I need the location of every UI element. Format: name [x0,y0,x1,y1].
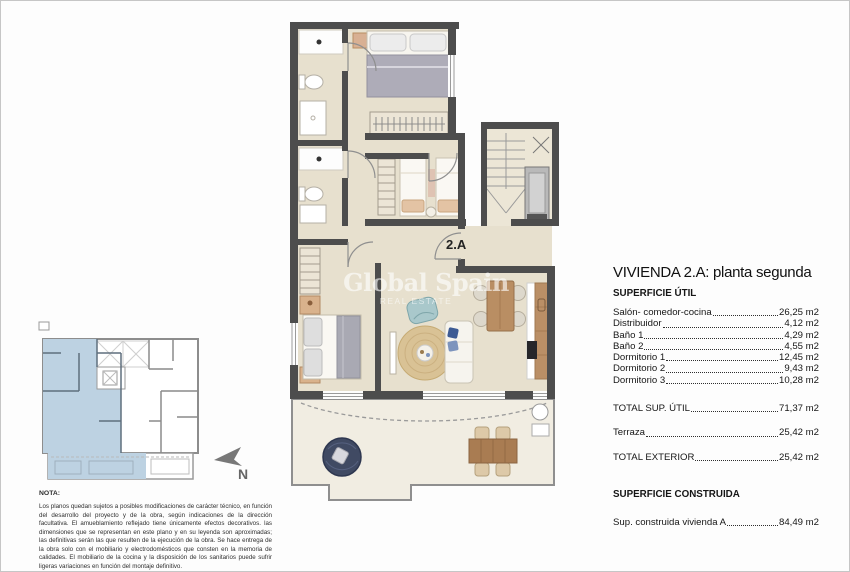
chair [496,427,510,440]
dotted-leader [695,460,778,461]
surface-util-heading: SUPERFICIE ÚTIL [613,288,819,299]
row-label: Dormitorio 2 [613,363,665,374]
key-plan [39,322,198,479]
row-value: 4,12 m2 [784,318,819,329]
faucet [317,157,322,162]
shafts [97,341,149,367]
toilet-tank [299,75,305,89]
unit-label: 2.A [446,237,467,252]
dotted-leader [646,436,778,437]
chair [496,463,510,476]
north-label: N [238,466,248,482]
surface-row: Baño 1 4,29 m2 [613,330,819,341]
row-value: 10,28 m2 [779,375,819,386]
dotted-leader [644,349,783,350]
row-label: Dormitorio 1 [613,352,665,363]
note-body: Los planos quedan sujetos a posibles mod… [39,503,272,571]
dotted-leader [713,315,778,316]
dotted-leader [644,338,783,339]
construida-row: Sup. construida vivienda A 84,49 m2 [613,517,819,528]
total-exterior-row: TOTAL EXTERIOR 25,42 m2 [613,452,819,463]
row-value: 26,25 m2 [779,307,819,318]
row-label: Baño 1 [613,330,643,341]
row-value: 84,49 m2 [779,517,819,528]
terraza-row: Terraza 25,42 m2 [613,427,819,438]
pillow [304,349,322,376]
oven [527,341,537,359]
surface-row: Dormitorio 2 9,43 m2 [613,363,819,374]
row-label: Terraza [613,427,645,438]
kitchen-counter [527,283,548,379]
lamp [308,301,313,306]
watermark-subtitle: REAL ESTATE [380,296,453,306]
page-title: VIVIENDA 2.A: planta segunda [613,264,819,281]
north-arrow-icon [214,447,242,466]
pillow [438,200,460,212]
toilet-tank [299,187,305,201]
north-arrow: N [214,447,248,482]
wardrobe [370,112,448,135]
row-value: 12,45 m2 [779,352,819,363]
surface-row: Dormitorio 1 12,45 m2 [613,352,819,363]
shower [300,205,326,223]
row-label: TOTAL SUP. ÚTIL [613,403,690,414]
dotted-leader [663,327,784,328]
toilet [305,75,323,89]
surface-row: Distribuidor 4,12 m2 [613,318,819,329]
pillow [410,34,446,51]
double-bed [367,31,449,97]
surface-construida-heading: SUPERFICIE CONSTRUIDA [613,489,819,500]
pillow [402,200,424,212]
floorplan-page: 2.A Global Spain REAL ESTATE [0,0,850,572]
row-label: Salón- comedor-cocina [613,307,712,318]
pillow [447,327,459,339]
terrace-daybed [323,438,361,476]
chair [475,427,489,440]
watermark-title: Global Spain [343,268,509,297]
closet [378,159,395,215]
tray [417,345,433,361]
shower [300,101,326,135]
console-table [390,332,396,374]
dotted-leader [691,411,778,412]
rug [398,326,452,380]
surface-rows: Salón- comedor-cocina 26,25 m2 Distribui… [613,307,819,386]
toilet [305,187,323,201]
dotted-leader [666,383,778,384]
pillow [304,318,322,346]
row-label: Sup. construida vivienda A [613,517,726,528]
elevator [525,167,549,221]
row-value: 25,42 m2 [779,427,819,438]
row-value: 71,37 m2 [779,403,819,414]
note: NOTA: Los planos quedan sujetos a posibl… [39,490,272,571]
row-value: 25,42 m2 [779,452,819,463]
total-util-row: TOTAL SUP. ÚTIL 71,37 m2 [613,403,819,414]
surface-row: Baño 2 4,55 m2 [613,341,819,352]
details-panel: VIVIENDA 2.A: planta segunda SUPERFICIE … [613,264,819,528]
closet [300,248,320,294]
row-label: TOTAL EXTERIOR [613,452,694,463]
pillow [370,34,406,51]
twin-bedroom [378,158,462,217]
row-value: 9,43 m2 [784,363,819,374]
row-value: 4,29 m2 [784,330,819,341]
stool [426,207,436,217]
dotted-leader [666,360,778,361]
note-heading: NOTA: [39,490,272,497]
dotted-leader [727,525,778,526]
chair [474,312,489,327]
faucet [317,40,322,45]
sofa [445,321,473,383]
surface-row: Dormitorio 3 10,28 m2 [613,375,819,386]
row-value: 4,55 m2 [784,341,819,352]
bed [303,315,361,379]
row-label: Distribuidor [613,318,662,329]
row-label: Dormitorio 3 [613,375,665,386]
pillow [447,340,459,352]
blanket [367,55,449,97]
row-label: Baño 2 [613,341,643,352]
surface-row: Salón- comedor-cocina 26,25 m2 [613,307,819,318]
blanket [337,316,360,378]
dotted-leader [666,372,783,373]
single-bed [400,158,426,216]
chair [475,463,489,476]
